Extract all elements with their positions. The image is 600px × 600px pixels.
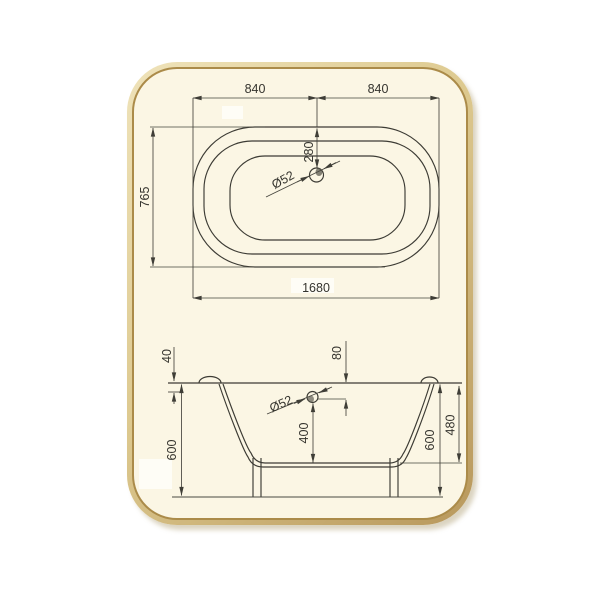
dim-label-280: 280 <box>302 142 316 163</box>
dim-label-600-left: 600 <box>165 440 179 461</box>
tub-leg-left <box>253 458 261 497</box>
tub-leg-right <box>390 458 398 497</box>
technical-drawing: 840 840 765 1680 280 Ø52 <box>0 0 600 600</box>
dim-label-40: 40 <box>160 349 174 363</box>
dim-label-1680: 1680 <box>302 281 330 295</box>
leader-arrow <box>297 176 309 182</box>
dim-label-80: 80 <box>330 346 344 360</box>
rim-lip-left <box>199 377 221 383</box>
leader-arrow <box>294 399 305 404</box>
dim-label-400: 400 <box>297 423 311 444</box>
dim-label-480: 480 <box>444 415 458 436</box>
leader-arrow <box>319 388 330 393</box>
dim-label-600-right: 600 <box>423 430 437 451</box>
dim-label-840-right: 840 <box>368 82 389 96</box>
leader-arrow <box>324 163 336 169</box>
page: 840 840 765 1680 280 Ø52 <box>0 0 600 600</box>
rim-lip-right <box>421 377 438 383</box>
dim-label-840-left: 840 <box>245 82 266 96</box>
dim-label-section-drain-diameter: Ø52 <box>267 393 294 415</box>
dim-label-765: 765 <box>138 187 152 208</box>
section-view: 40 80 Ø52 400 600 600 480 <box>160 341 462 497</box>
top-view: 840 840 765 1680 280 Ø52 <box>138 82 439 298</box>
tub-shell-inner <box>223 384 430 463</box>
